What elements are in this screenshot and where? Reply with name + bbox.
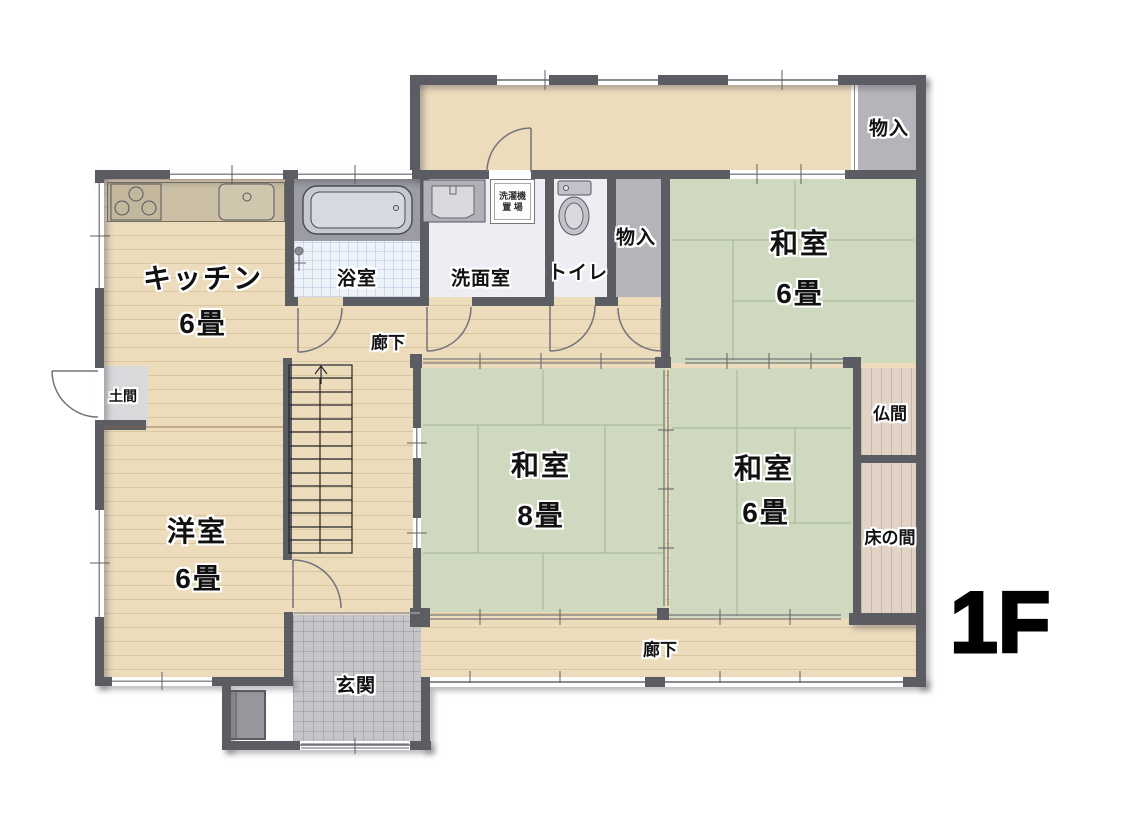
- wall-alcove-left: [853, 368, 861, 618]
- closet-hall-label: 物入: [616, 223, 656, 250]
- floor-plan: キッチン 6畳 浴室 洗面室 トイレ 物入 物入 和室 6畳 和室 8畳 和室 …: [0, 0, 1143, 829]
- window-western-west: [95, 510, 104, 617]
- wall-toilet-closet: [607, 179, 616, 306]
- window-bath-top: [298, 170, 412, 179]
- wall-closet-washitsu: [661, 170, 670, 368]
- door-opening-washroom-north: [489, 170, 531, 179]
- japanese-room-ne-floor: [670, 179, 916, 363]
- japanese-room-ne-label: 和室: [770, 222, 830, 262]
- doma-label: 土間: [109, 386, 137, 406]
- wall-northblock-left: [410, 75, 420, 179]
- wall-hall-upper-c: [845, 170, 916, 179]
- shoji-washitsu8-b: [413, 518, 421, 548]
- door-opening-doma: [95, 368, 104, 420]
- japanese-room-se-label: 和室: [734, 447, 794, 487]
- window-hall-south-b: [665, 677, 903, 687]
- japanese-room-center-label: 和室: [511, 444, 571, 484]
- wall-wet-bottom-b: [343, 297, 427, 306]
- bathroom-label: 浴室: [337, 264, 377, 291]
- window-western-south: [112, 677, 212, 686]
- wall-north-top: [410, 75, 925, 85]
- kitchen-counter: [107, 182, 285, 222]
- shoji-washitsu8-a: [413, 428, 421, 458]
- entrance-label: 玄関: [336, 671, 376, 698]
- butsuma-label: 仏間: [873, 400, 907, 425]
- closet-north-label: 物入: [869, 114, 909, 141]
- wall-chunk-c: [843, 357, 861, 368]
- hallway-upper-label: 廊下: [371, 329, 405, 354]
- wall-wet-bottom-d: [595, 297, 618, 306]
- wall-butsuma-tokonoma: [853, 455, 916, 463]
- kitchen-label: キッチン: [143, 257, 263, 297]
- toilet-label: トイレ: [548, 258, 608, 285]
- hallway-lower-label: 廊下: [643, 636, 677, 661]
- japanese-room-center-size: 8畳: [517, 494, 565, 534]
- wall-wet-bottom-c: [472, 297, 550, 306]
- western-room-size: 6畳: [175, 557, 223, 597]
- closet-north-door: [851, 84, 858, 172]
- wall-east: [916, 75, 926, 687]
- wall-hall-upper-b: [531, 170, 730, 179]
- wall-stairs-left: [283, 358, 292, 560]
- washroom-label: 洗面室: [451, 264, 511, 291]
- western-room-label: 洋室: [167, 510, 227, 550]
- window-north-a: [497, 75, 549, 85]
- wall-chunk-a: [410, 354, 422, 368]
- window-kitchen-top: [170, 170, 283, 179]
- wall-tokonoma-bottom: [849, 613, 916, 625]
- wall-doma-bottom: [104, 420, 146, 430]
- window-north-b: [598, 75, 658, 85]
- wall-entrance-ne-chunk: [410, 608, 430, 627]
- wall-washitsu8-left: [413, 365, 421, 612]
- japanese-room-center-floor: [421, 368, 665, 612]
- wall-hall-upper-a: [419, 170, 489, 179]
- wall-western-entrance: [284, 612, 293, 677]
- entrance-closet: [226, 690, 266, 740]
- floor-number-label: 1F: [950, 574, 1050, 673]
- entrance-sliding-door: [300, 741, 410, 750]
- sliding-door-hall-washitsu: [730, 170, 845, 179]
- japanese-room-se-size: 6畳: [742, 491, 790, 531]
- kitchen-size: 6畳: [179, 302, 227, 342]
- wall-chunk-b: [655, 357, 671, 368]
- window-hall-south-a: [430, 677, 645, 687]
- tokonoma-label: 床の間: [865, 524, 916, 549]
- wall-wet-bottom-a: [285, 297, 298, 306]
- hallway-upper-floor: [419, 84, 916, 172]
- window-kitchen-west: [95, 183, 104, 288]
- wall-bath-washroom: [420, 179, 429, 306]
- laundry-space-inner-border: [494, 183, 531, 220]
- wall-kitchen-bath: [285, 179, 294, 306]
- window-north-c: [728, 75, 838, 85]
- bath-platform: [294, 179, 420, 241]
- laundry-space-box: 洗濯機 置 場: [490, 179, 535, 224]
- wall-chunk-d: [657, 608, 669, 620]
- wall-washroom-toilet: [545, 179, 554, 306]
- japanese-room-ne-size: 6畳: [776, 272, 824, 312]
- wall-entrance-right: [421, 686, 430, 750]
